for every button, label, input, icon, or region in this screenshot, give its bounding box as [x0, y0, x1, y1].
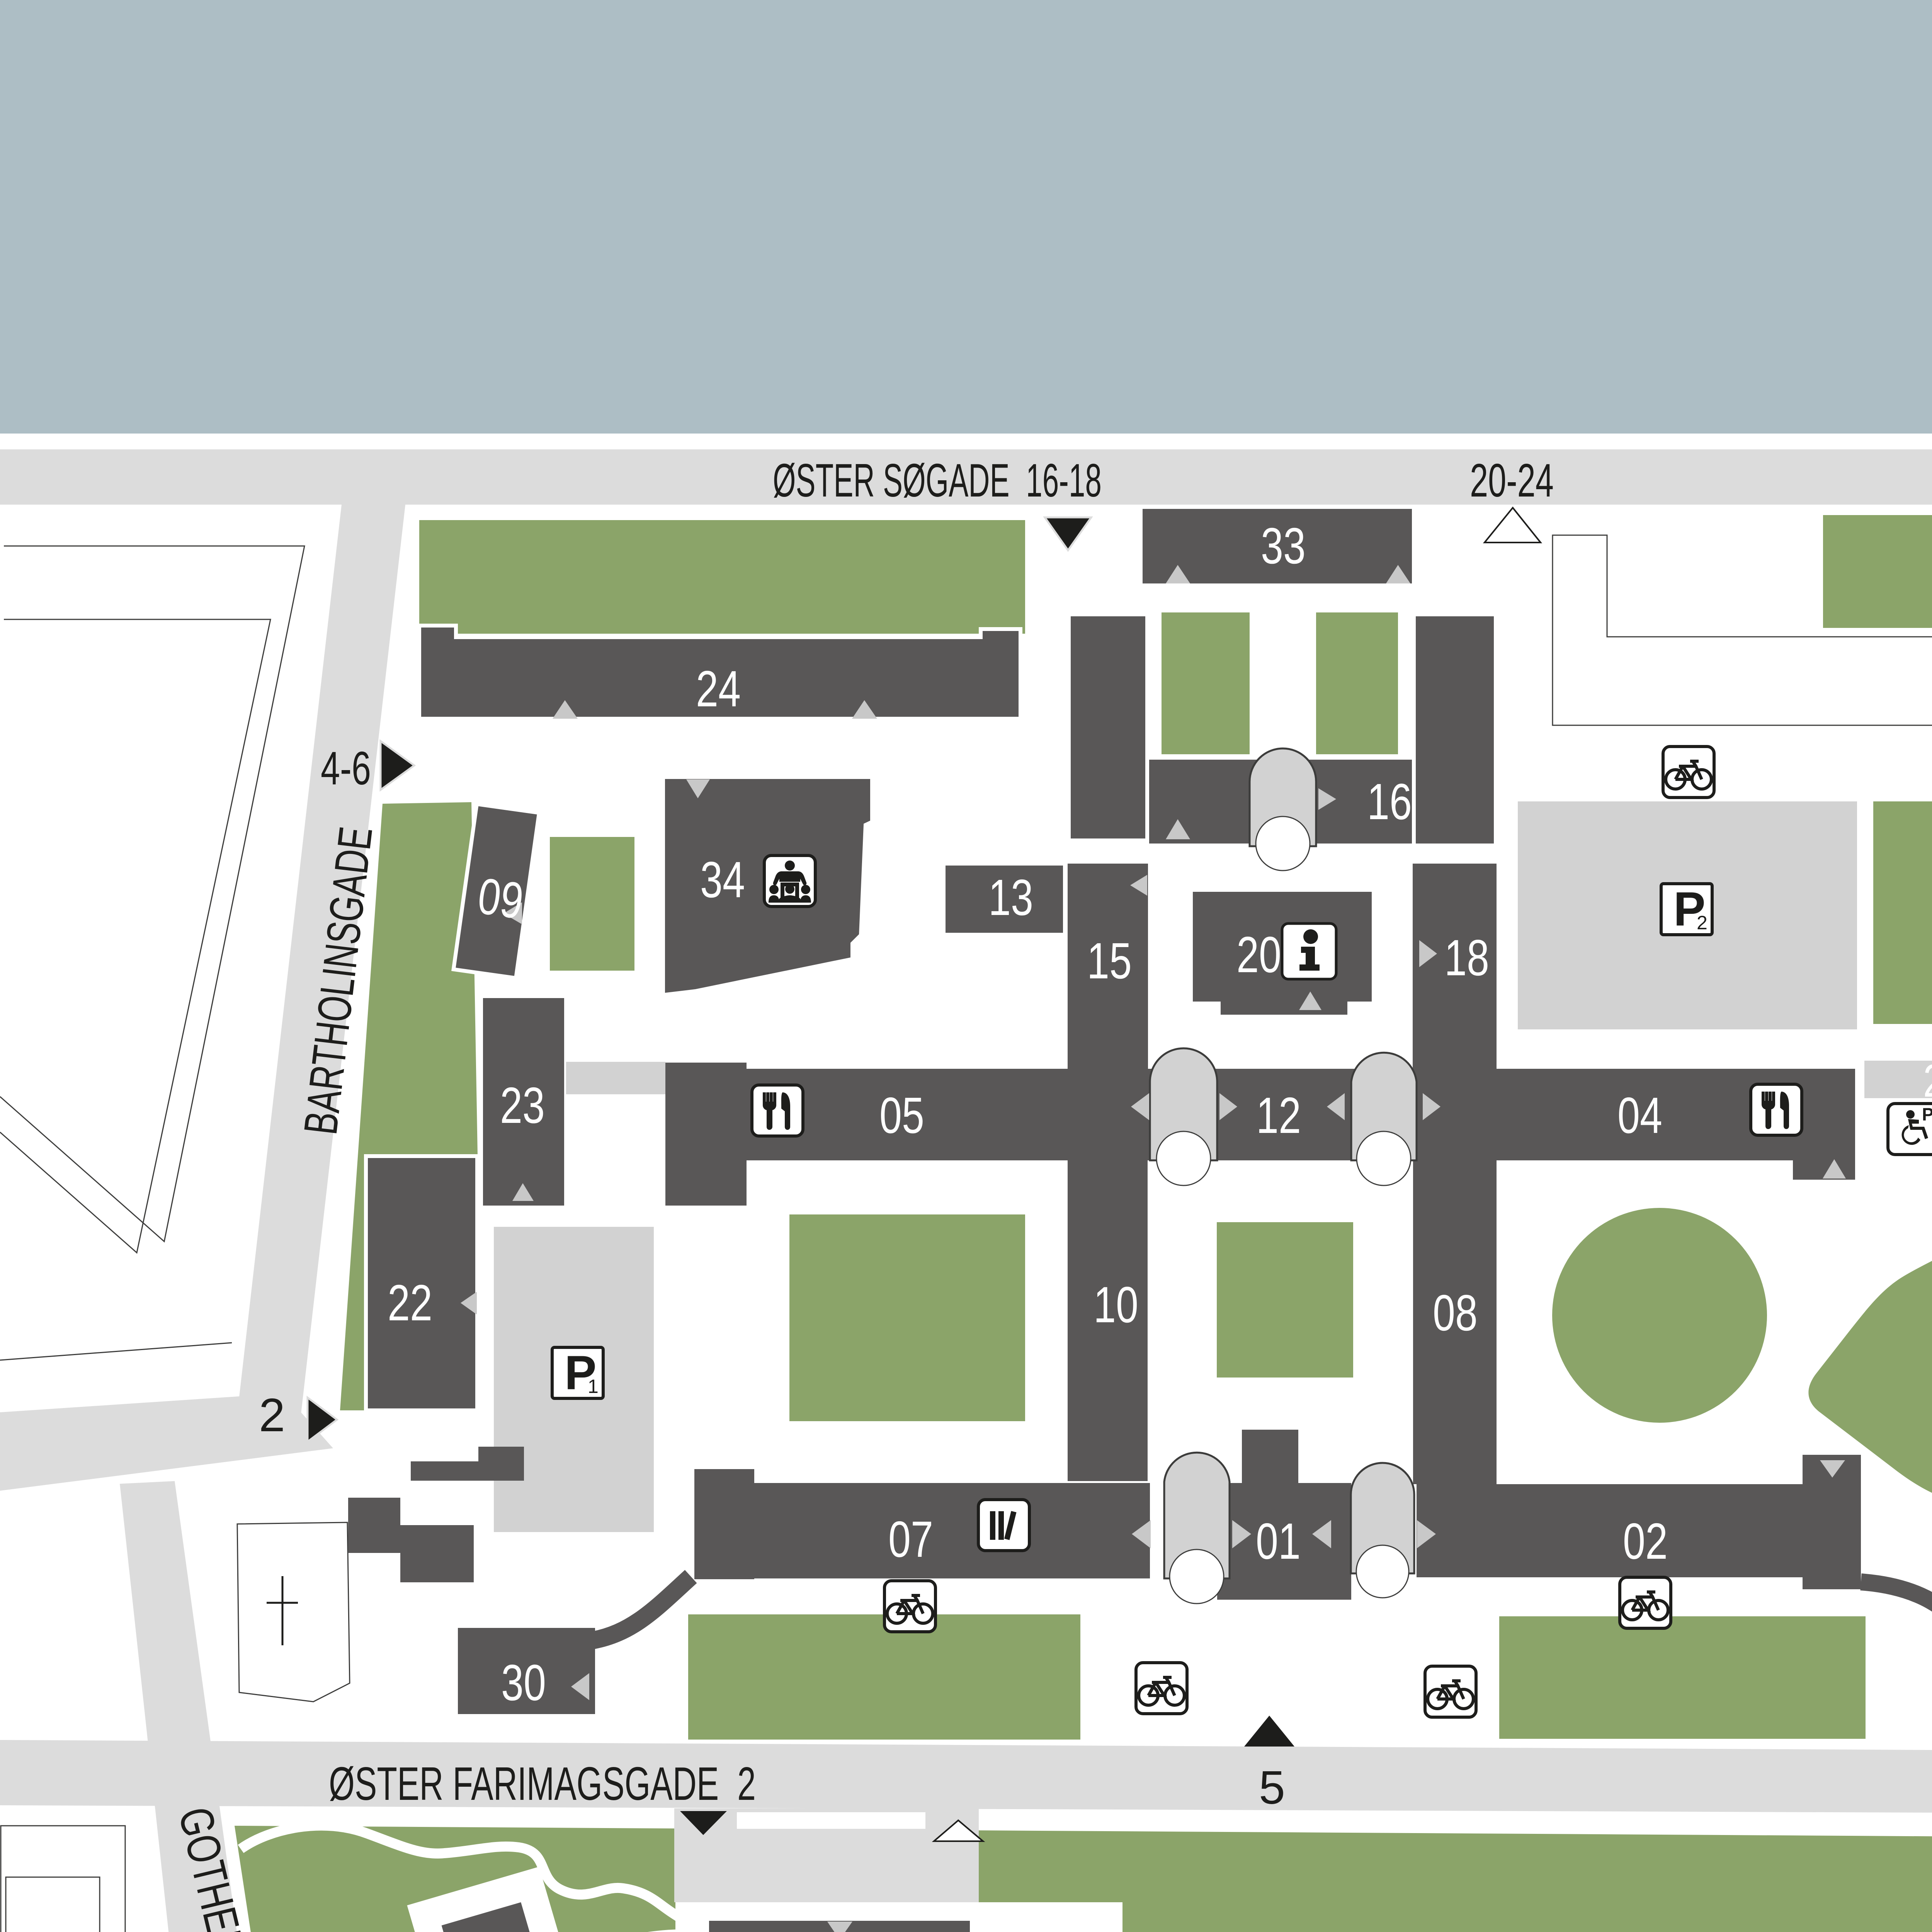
svg-text:07: 07: [888, 1511, 933, 1568]
svg-text:33: 33: [1261, 517, 1306, 574]
svg-text:2: 2: [1697, 912, 1708, 934]
svg-text:15: 15: [1087, 932, 1132, 989]
svg-text:28: 28: [1923, 1055, 1932, 1107]
svg-text:20: 20: [1236, 926, 1281, 983]
svg-text:34: 34: [700, 851, 745, 908]
svg-text:30: 30: [501, 1654, 546, 1711]
svg-text:09: 09: [474, 867, 527, 930]
svg-text:13: 13: [988, 869, 1033, 926]
svg-text:5: 5: [1259, 1761, 1285, 1814]
svg-text:08: 08: [1433, 1284, 1478, 1341]
svg-text:24: 24: [696, 660, 741, 717]
svg-text:02: 02: [1623, 1513, 1668, 1570]
svg-text:12: 12: [1256, 1087, 1301, 1144]
svg-text:04: 04: [1617, 1087, 1662, 1144]
svg-text:23: 23: [500, 1077, 545, 1134]
svg-text:4-6: 4-6: [321, 742, 371, 794]
svg-text:10: 10: [1094, 1276, 1138, 1333]
svg-text:05: 05: [879, 1087, 924, 1144]
svg-text:20-24: 20-24: [1470, 454, 1554, 507]
svg-text:ØSTER FARIMAGSGADE 2: ØSTER FARIMAGSGADE 2: [329, 1757, 756, 1810]
svg-text:01: 01: [1256, 1513, 1301, 1570]
svg-text:22: 22: [388, 1274, 432, 1331]
svg-text:1: 1: [588, 1376, 599, 1397]
svg-text:2: 2: [259, 1389, 285, 1441]
svg-text:ØSTER SØGADE 16-18: ØSTER SØGADE 16-18: [773, 454, 1102, 507]
svg-text:16: 16: [1367, 773, 1412, 830]
svg-text:18: 18: [1444, 929, 1489, 986]
